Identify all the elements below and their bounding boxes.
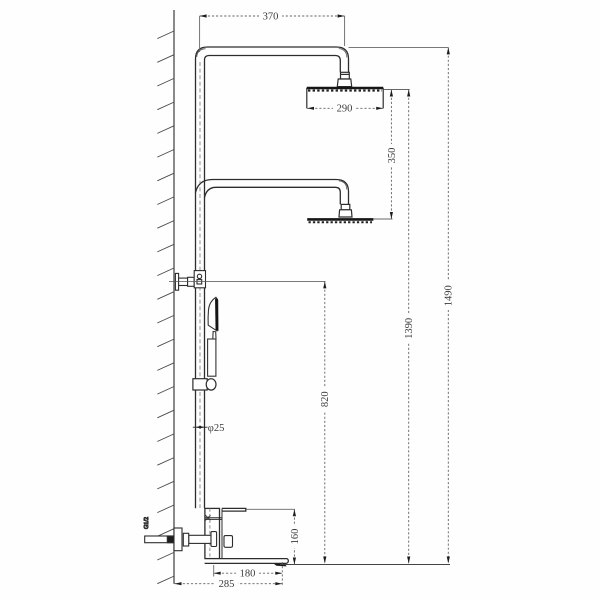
svg-text:180: 180 (240, 569, 256, 580)
svg-text:φ25: φ25 (208, 423, 225, 434)
svg-text:820: 820 (320, 391, 331, 407)
svg-text:350: 350 (387, 148, 398, 164)
svg-text:290: 290 (337, 103, 353, 114)
svg-text:1390: 1390 (404, 318, 415, 339)
svg-text:G1/2: G1/2 (144, 517, 150, 529)
svg-text:160: 160 (290, 529, 301, 545)
svg-text:285: 285 (219, 579, 235, 590)
svg-text:1490: 1490 (444, 285, 455, 306)
svg-text:370: 370 (263, 11, 279, 22)
